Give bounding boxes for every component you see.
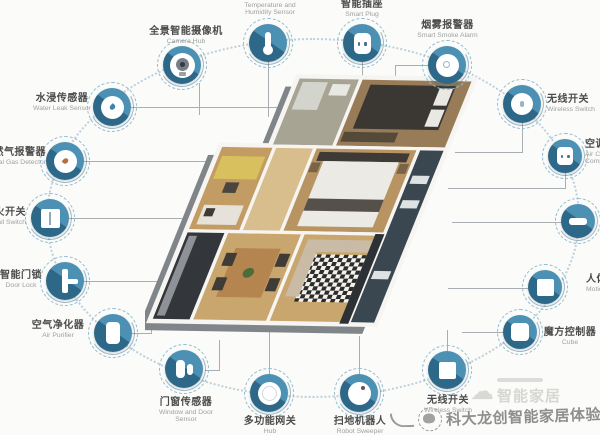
device-node-camera-hub [163,46,201,84]
device-node-smoke-alarm [428,46,466,84]
cube-icon [511,323,529,341]
label-robot-sweeper: 扫地机器人 Robot Sweeper [323,416,397,435]
camera-icon [170,53,195,78]
device-node-water-leak-sensor [93,88,131,126]
device-node-cube [503,315,537,349]
smart-home-diagram: { "title": "smart home devices around 3d… [0,0,600,435]
watermark-dark-text: 科大龙创智能家居体验 [446,403,600,429]
device-node-wireless-switch-bottom [428,351,466,389]
label-cube: 魔方控制器 Cube [536,327,600,346]
label-temp-humidity: 温湿度传感器 Temperature and Humidity Sensor [215,0,325,17]
label-wireless-switch-right: 无线开关 Wireless Switch [547,94,600,113]
device-node-wall-switch [31,199,69,237]
label-camera-hub: 全景智能摄像机 Camera Hub [131,26,241,45]
device-node-air-purifier [94,314,132,352]
device-node-wireless-switch-right [503,85,541,123]
water-leak-icon [101,96,124,119]
label-door-lock: 智能门锁 Door Lock [0,270,44,289]
label-smart-plug: 智能插座 Smart Plug [317,0,407,18]
label-gas-detector: 天然气报警器 Natural Gas Detector [0,147,46,166]
label-motion-sensor: 人体传感器 Motion Sensor [586,274,600,293]
wall-switch-icon [41,209,60,228]
gateway-ring-icon [258,382,281,405]
cloud-logo-icon: ☁ [470,382,494,402]
thermometer-icon [265,32,271,48]
device-node-robot-sweeper [340,374,378,412]
watermark-light: ☁ 智能家居 [470,378,561,406]
power-socket-icon [354,33,371,54]
device-node-bar-device [561,204,595,238]
label-air-purifier: 空气净化器 Air Purifier [26,320,90,339]
label-smoke-alarm: 烟雾报警器 Smart Smoke Alarm [400,20,495,39]
device-node-smart-plug [343,24,381,62]
device-node-gas-detector [46,142,84,180]
square-switch-icon [439,362,456,379]
label-door-window-sensor: 门窗传感器 Window and Door Sensor [147,397,225,424]
label-wall-switch: 零火开关 Wall Switch [0,207,26,226]
door-window-sensor-icon [176,360,193,378]
label-ac-companion: 空调伴侣 Air Conditioner Companion [585,139,600,166]
device-node-door-lock [46,262,84,300]
floor-plan-3d [145,66,480,356]
robot-vacuum-icon [348,382,371,405]
label-water-leak-sensor: 水浸传感器 Water Leak Sensor [32,93,92,112]
device-node-ac-companion [548,139,582,173]
round-button-icon [511,93,533,115]
cat-logo-icon [418,407,443,432]
bar-device-icon [569,218,587,225]
device-node-motion-sensor [528,270,562,304]
smoke-detector-icon [436,54,459,77]
gas-detector-icon [54,150,77,173]
device-node-temp-humidity-sensor [249,24,287,62]
device-node-hub [250,374,288,412]
square-sensor-icon [537,279,554,296]
label-hub: 多功能网关 Hub [233,416,307,435]
swoosh-icon [390,413,414,428]
socket-icon [557,147,573,165]
device-node-door-window-sensor [165,350,203,388]
door-lock-icon [62,269,68,293]
watermark-light-subline [497,378,543,382]
air-purifier-icon [106,322,120,344]
